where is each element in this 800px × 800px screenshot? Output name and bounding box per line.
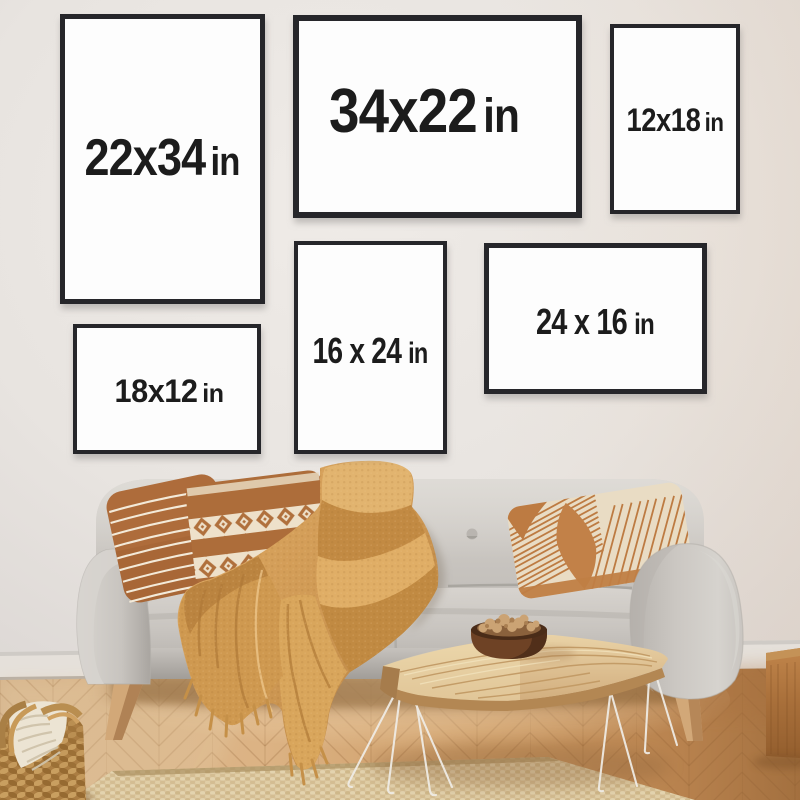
svg-text:12x18in: 12x18in: [627, 102, 724, 138]
svg-text:16 x 24 in: 16 x 24 in: [313, 330, 428, 371]
svg-text:18x12in: 18x12in: [115, 373, 224, 409]
svg-text:24 x 16 in: 24 x 16 in: [536, 301, 654, 342]
